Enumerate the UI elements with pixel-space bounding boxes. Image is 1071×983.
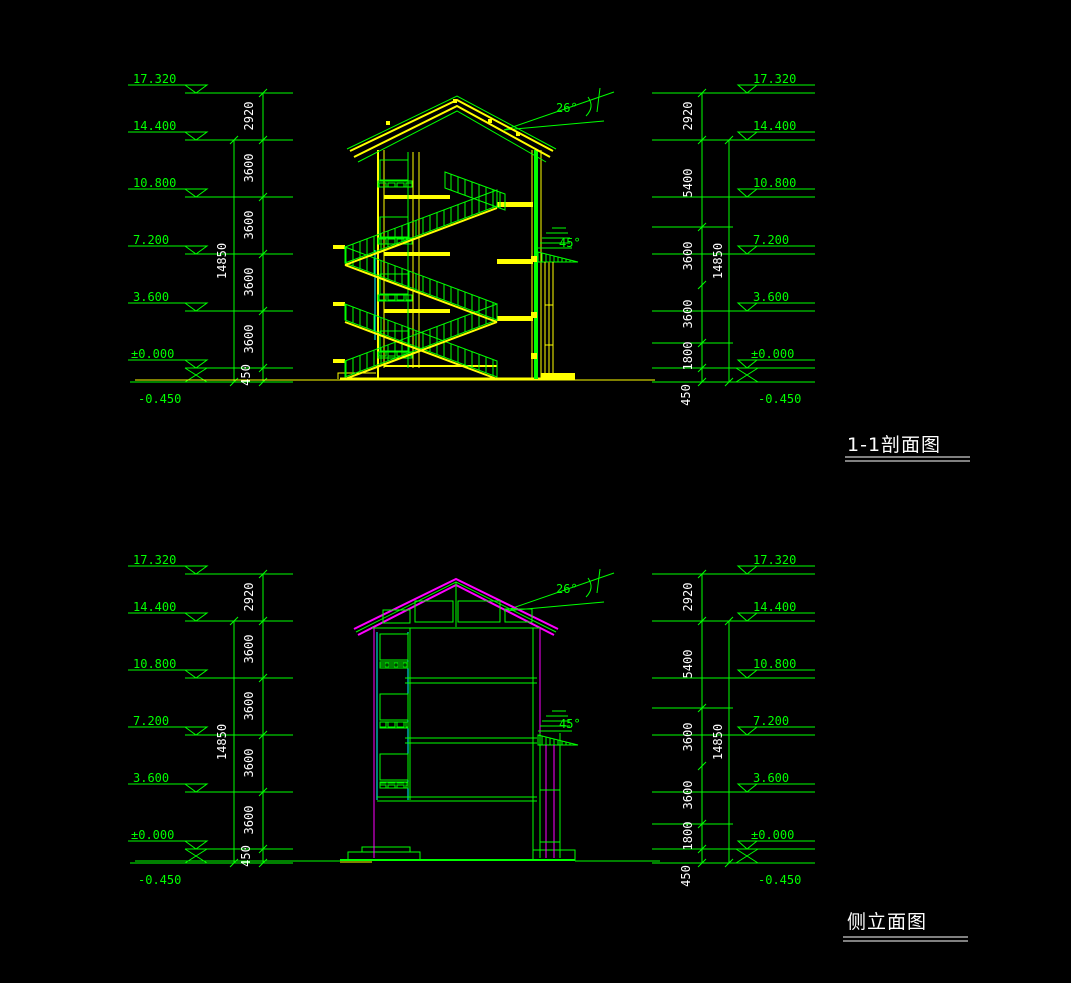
- dimension-label: 5400: [681, 169, 695, 198]
- dimension-label: 3600: [242, 325, 256, 354]
- level-label: 3.600: [753, 290, 789, 304]
- dimension-label: 2920: [242, 583, 256, 612]
- dimension-label: 3600: [242, 749, 256, 778]
- level-label: ±0.000: [131, 347, 174, 361]
- section-drawing: 17.320 14.400 10.800 7.200 3.600 ±0.000 …: [128, 72, 970, 461]
- total-dimension-label: 14850: [711, 243, 725, 279]
- elevation-title-block: 侧立面图: [843, 911, 968, 941]
- level-label: 7.200: [133, 233, 169, 247]
- level-label: 17.320: [133, 553, 176, 567]
- level-label: 17.320: [753, 553, 796, 567]
- roof-angle-label: 26°: [556, 101, 578, 115]
- dimension-label: 450: [239, 364, 253, 386]
- dimension-label: 450: [679, 865, 693, 887]
- level-label: -0.450: [758, 873, 801, 887]
- dimension-label: 3600: [242, 692, 256, 721]
- level-label: ±0.000: [751, 347, 794, 361]
- level-label: -0.450: [758, 392, 801, 406]
- level-label: 14.400: [753, 600, 796, 614]
- dimension-label: 3600: [681, 242, 695, 271]
- canopy-angle-label: 45°: [559, 717, 581, 731]
- level-label: 14.400: [133, 600, 176, 614]
- section-dim-frame: [128, 85, 815, 386]
- dimension-label: 3600: [242, 806, 256, 835]
- level-label: 7.200: [753, 233, 789, 247]
- elevation-drawing: 17.320 14.400 10.800 7.200 3.600 ±0.000 …: [128, 553, 968, 941]
- canopy-angle-label: 45°: [559, 236, 581, 250]
- dimension-label: 2920: [681, 102, 695, 131]
- total-dimension-label: 14850: [215, 243, 229, 279]
- drawing-title: 侧立面图: [847, 911, 927, 933]
- dimension-label: 3600: [681, 781, 695, 810]
- entry-canopy: [538, 711, 578, 858]
- level-label: ±0.000: [751, 828, 794, 842]
- elevation-dim-frame: [128, 566, 815, 867]
- dimension-label: 2920: [681, 583, 695, 612]
- level-label: 10.800: [133, 657, 176, 671]
- level-label: 10.800: [133, 176, 176, 190]
- roof-angle-label: 26°: [556, 582, 578, 596]
- dimension-label: 1800: [681, 342, 695, 371]
- dimension-label: 1800: [681, 822, 695, 851]
- level-label: 7.200: [753, 714, 789, 728]
- level-label: 14.400: [133, 119, 176, 133]
- dimension-label: 3600: [242, 635, 256, 664]
- level-label: -0.450: [138, 392, 181, 406]
- dimension-label: 3600: [242, 268, 256, 297]
- level-label: 10.800: [753, 176, 796, 190]
- level-label: -0.450: [138, 873, 181, 887]
- total-dimension-label: 14850: [215, 724, 229, 760]
- level-label: 14.400: [753, 119, 796, 133]
- dimension-label: 3600: [242, 154, 256, 183]
- stair-flights: [345, 172, 505, 379]
- dimension-label: 5400: [681, 650, 695, 679]
- dimension-label: 3600: [681, 300, 695, 329]
- entry-canopy: [538, 228, 578, 379]
- drawing-title: 1-1剖面图: [847, 434, 941, 456]
- dimension-label: 450: [679, 384, 693, 406]
- level-label: 17.320: [753, 72, 796, 86]
- dimension-label: 3600: [242, 211, 256, 240]
- level-label: 7.200: [133, 714, 169, 728]
- level-label: 10.800: [753, 657, 796, 671]
- level-label: 17.320: [133, 72, 176, 86]
- level-label: 3.600: [753, 771, 789, 785]
- level-label: 3.600: [133, 771, 169, 785]
- dimension-label: 3600: [681, 723, 695, 752]
- dimension-label: 2920: [242, 102, 256, 131]
- level-label: ±0.000: [131, 828, 174, 842]
- total-dimension-label: 14850: [711, 724, 725, 760]
- cad-viewport: 17.320 14.400 10.800 7.200 3.600 ±0.000 …: [0, 0, 1071, 983]
- dimension-label: 450: [239, 845, 253, 867]
- level-label: 3.600: [133, 290, 169, 304]
- cad-canvas: 17.320 14.400 10.800 7.200 3.600 ±0.000 …: [0, 0, 1071, 983]
- section-title-block: 1-1剖面图: [845, 434, 970, 461]
- elevation-annotations: 17.320 14.400 10.800 7.200 3.600 ±0.000 …: [131, 553, 801, 887]
